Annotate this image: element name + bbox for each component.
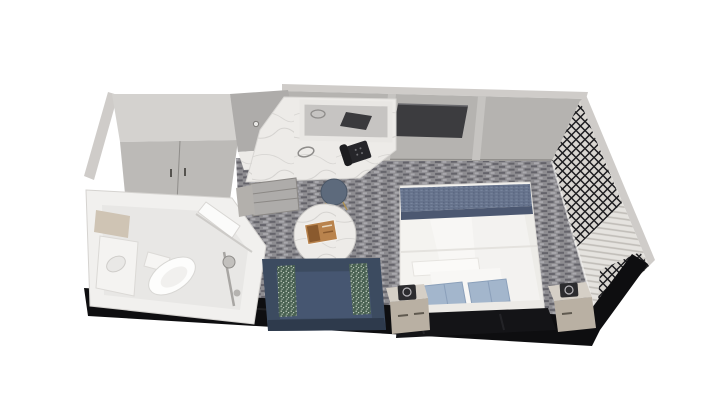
table-lamp-right	[560, 282, 579, 297]
sofa	[262, 258, 386, 331]
desk-drawers	[250, 178, 299, 216]
bed-pillow-right	[468, 279, 510, 305]
room-render	[0, 0, 726, 408]
nightstand-slot	[414, 313, 424, 314]
left-wall	[84, 92, 118, 180]
tv-screen	[392, 104, 468, 138]
sofa-front	[268, 318, 386, 331]
coffee-table	[294, 204, 356, 266]
table-lamp-left	[398, 284, 417, 300]
accent-pillow-left	[277, 265, 297, 317]
nightstand-slot	[562, 313, 572, 314]
nightstand-left-front	[390, 298, 430, 334]
stool	[321, 179, 347, 205]
stateroom-plan	[0, 0, 726, 408]
shower-handheld	[234, 290, 241, 297]
nightstand-left	[386, 284, 430, 334]
shower-head	[223, 256, 235, 268]
nightstand-right-front	[554, 297, 596, 332]
nightstand-slot	[398, 315, 408, 316]
desk-cabinet	[236, 185, 255, 217]
hook	[253, 121, 258, 126]
wardrobe-top	[112, 94, 238, 142]
